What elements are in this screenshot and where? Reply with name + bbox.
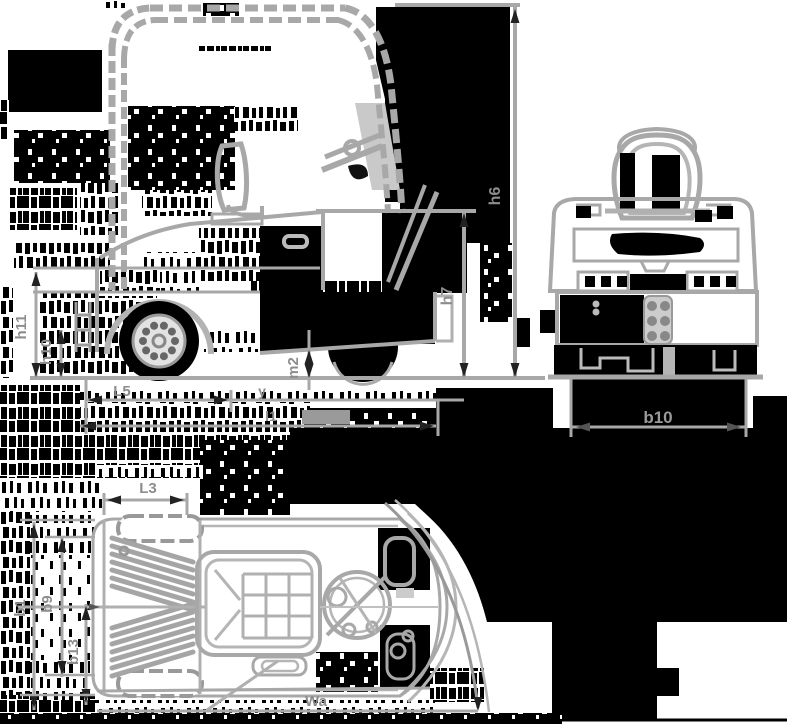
svg-text:h6: h6 — [487, 187, 504, 206]
svg-text:m2: m2 — [285, 357, 302, 379]
svg-text:Wa: Wa — [305, 693, 328, 710]
svg-text:h7: h7 — [439, 287, 456, 306]
svg-text:b13: b13 — [65, 639, 82, 665]
svg-text:L3: L3 — [139, 480, 157, 497]
svg-text:b10: b10 — [643, 408, 672, 427]
svg-text:b1: b1 — [12, 599, 29, 617]
svg-text:h10: h10 — [38, 339, 55, 365]
svg-text:L5: L5 — [113, 383, 131, 400]
svg-text:h11: h11 — [13, 314, 30, 339]
svg-text:b9: b9 — [39, 595, 56, 613]
svg-text:l1: l1 — [265, 408, 277, 424]
svg-text:y: y — [258, 383, 266, 399]
